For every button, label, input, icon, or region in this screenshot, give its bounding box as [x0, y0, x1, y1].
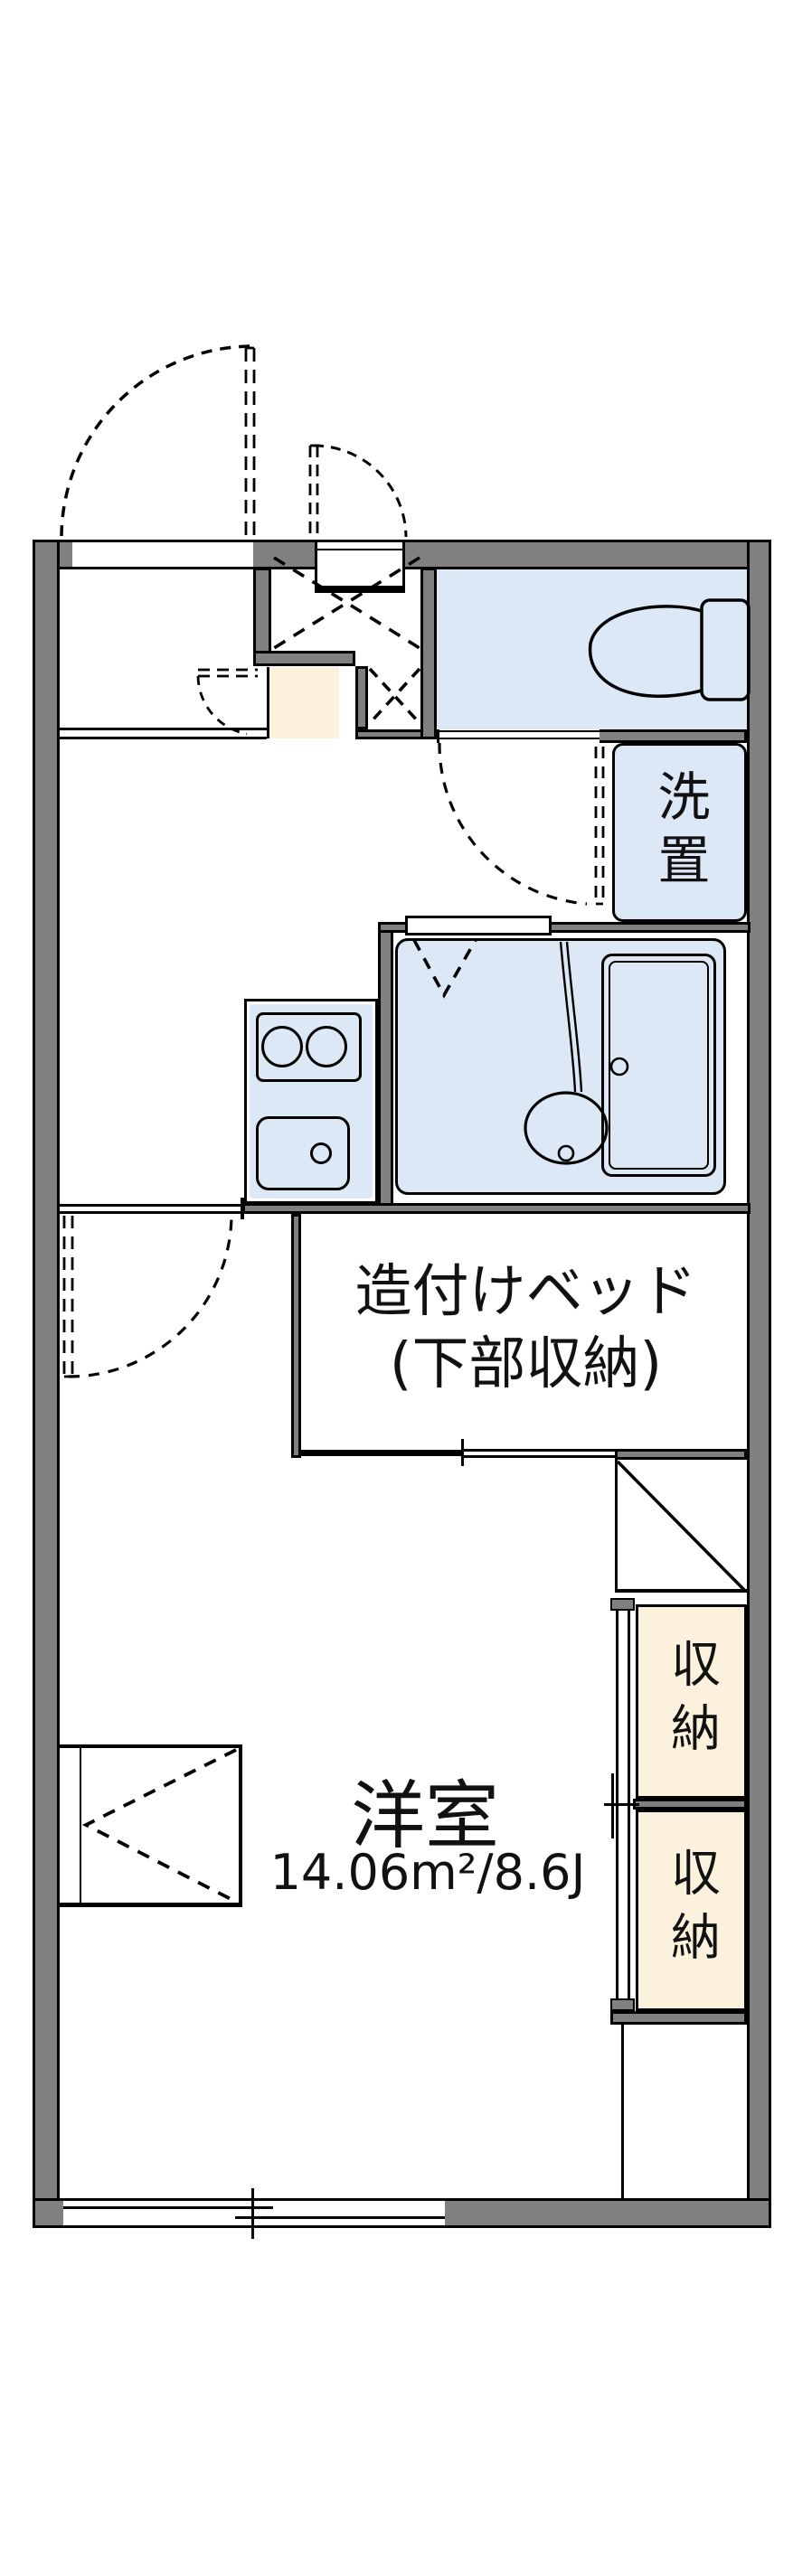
- top-wall-window: [72, 542, 253, 567]
- bed-foot-line-bottom: [463, 1455, 615, 1458]
- wall-genkan-mid: [253, 651, 355, 666]
- front-room-door-swing-arc: [198, 676, 247, 734]
- washer-space-label: 洗置: [612, 743, 747, 922]
- main-room-door-leaf: [64, 1216, 72, 1377]
- storage-upper-label: 収納: [636, 1604, 747, 1799]
- front-room-door-leaf: [198, 670, 258, 676]
- bottom-window-pane-left: [63, 2206, 273, 2209]
- corner-shelf-box: [615, 1460, 747, 1593]
- entry-door-leaf: [246, 348, 254, 535]
- washroom-threshold-line-bottom: [439, 738, 600, 739]
- bottom-window-pane-right: [235, 2216, 445, 2219]
- closet-door-stub-bottom: [610, 1998, 635, 2011]
- wall-toilet-left: [420, 568, 437, 739]
- front-room-boundary-line-bottom: [60, 737, 267, 739]
- room-window-cabinet-inner-line: [80, 1744, 81, 1907]
- entrance-step-hall: [267, 667, 339, 738]
- closet-door-stub-top: [610, 1598, 635, 1611]
- wall-bed-left: [291, 1214, 301, 1458]
- entry-door-swing-arc: [61, 346, 253, 536]
- entry-door2-leaf: [310, 446, 317, 535]
- stove-burner-right-icon: [306, 1026, 347, 1067]
- bed-foot-wall: [301, 1450, 463, 1456]
- storage-upper-label-text: 収納: [656, 1638, 728, 1766]
- entrance-porch-edge-line: [315, 549, 405, 550]
- genkan-floor-x-lower: [370, 669, 420, 723]
- wall-bath-left: [378, 922, 393, 1214]
- bed-label-line2: (下部収納): [301, 1318, 751, 1400]
- bottom-window-center-tick: [251, 2188, 254, 2239]
- room-area-label: 14.06m²/8.6J: [217, 1844, 638, 1901]
- bed-label-line1: 造付けベッド: [301, 1246, 751, 1328]
- wall-closet-bottom: [610, 2011, 747, 2025]
- front-room-boundary-line-top: [60, 728, 267, 730]
- bath-door-threshold: [405, 916, 552, 935]
- hall-room-boundary-line-top: [60, 1204, 244, 1207]
- bed-foot-line-top: [463, 1449, 615, 1452]
- storage-lower-label: 収納: [636, 1810, 747, 2011]
- stove-burner-left-icon: [261, 1026, 303, 1067]
- bathtub-inner-rim: [609, 961, 709, 1170]
- floorplan-canvas: 造付けベッド (下部収納) 洋室 14.06m²/8.6J 洗置 収納 収納: [0, 0, 812, 2576]
- entry-door2-swing-arc: [314, 446, 406, 537]
- toilet-room-floor: [437, 569, 747, 729]
- bottom-wall-window: [63, 2201, 445, 2225]
- room-right-strip-line: [621, 2025, 624, 2198]
- storage-lower-label-text: 収納: [656, 1847, 728, 1975]
- kitchen-sink: [256, 1116, 350, 1190]
- washroom-door-leaf: [596, 747, 603, 904]
- hall-room-boundary-tick: [241, 1198, 244, 1219]
- washroom-threshold-line-top: [439, 730, 600, 732]
- main-room-door-swing-arc: [69, 1214, 231, 1377]
- sink-drain-icon: [310, 1142, 332, 1164]
- wall-closet-separator: [633, 1799, 747, 1810]
- washroom-door-swing-arc: [439, 743, 587, 904]
- wall-bath-bottom: [242, 1203, 751, 1214]
- washer-space-label-text: 洗置: [642, 769, 718, 896]
- closet-sliding-center-tick-h: [604, 1803, 639, 1806]
- wall-right: [747, 540, 771, 2228]
- bed-foot-tick: [461, 1439, 464, 1466]
- wall-left: [33, 540, 60, 2228]
- hall-room-boundary-line-bottom: [60, 1211, 244, 1214]
- wall-shelf-top: [615, 1449, 747, 1460]
- closet-sliding-center-tick-v: [611, 1773, 614, 1838]
- room-window-cabinet: [60, 1744, 242, 1907]
- wall-genkan-right: [355, 666, 368, 729]
